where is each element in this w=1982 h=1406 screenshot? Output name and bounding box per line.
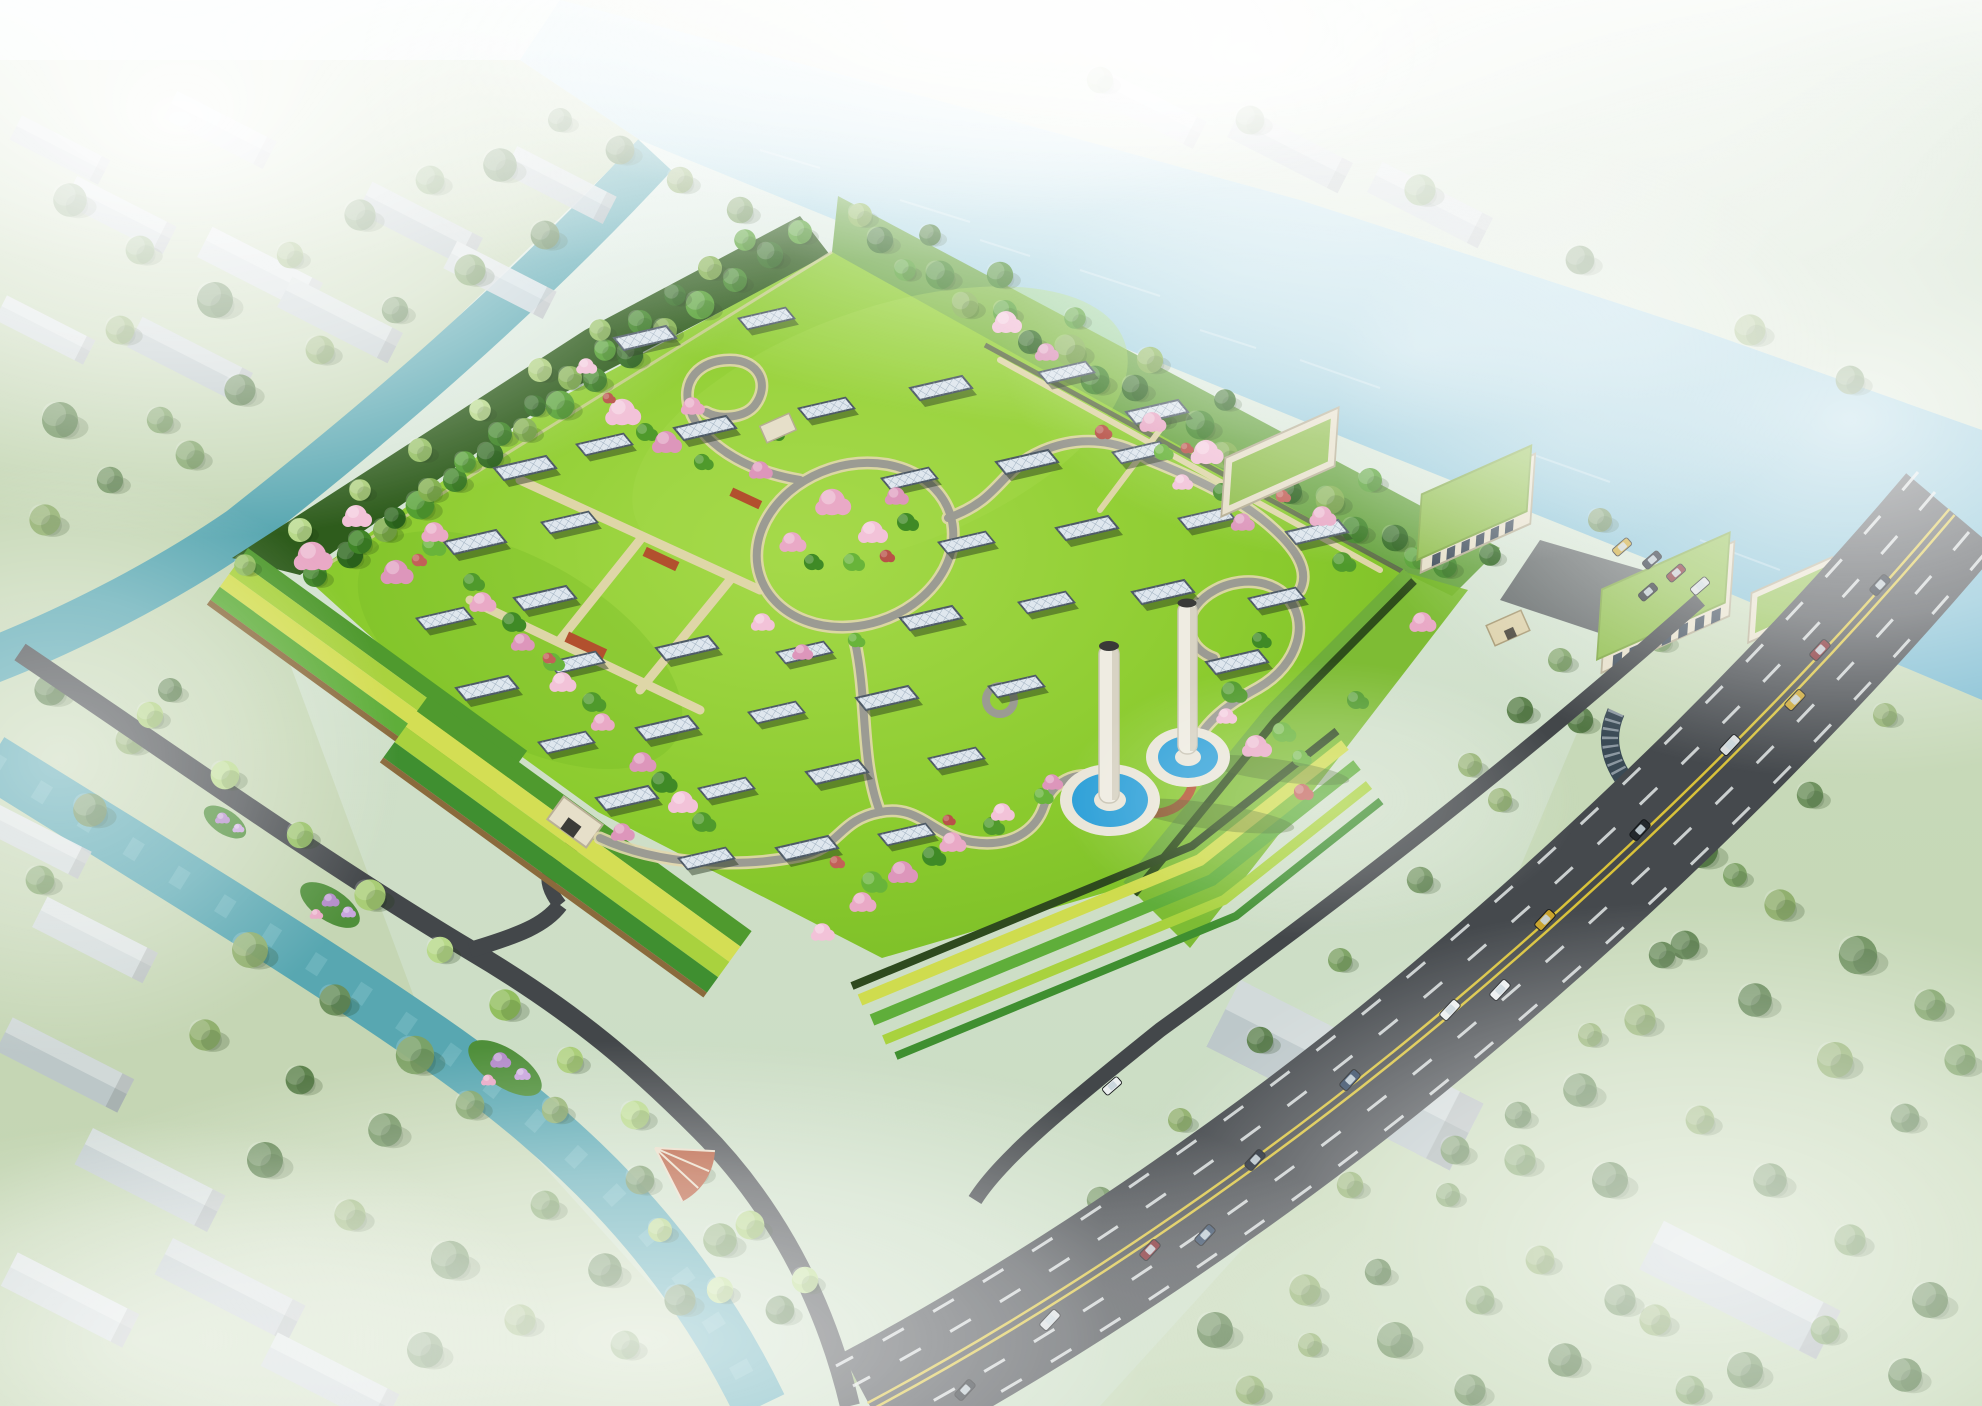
scene-svg	[0, 0, 1982, 1406]
fog-wisp	[1060, 660, 1580, 940]
aerial-rendering-stage	[0, 0, 1982, 1406]
tower-mouth	[1099, 641, 1119, 651]
tower-mouth	[1178, 599, 1197, 608]
